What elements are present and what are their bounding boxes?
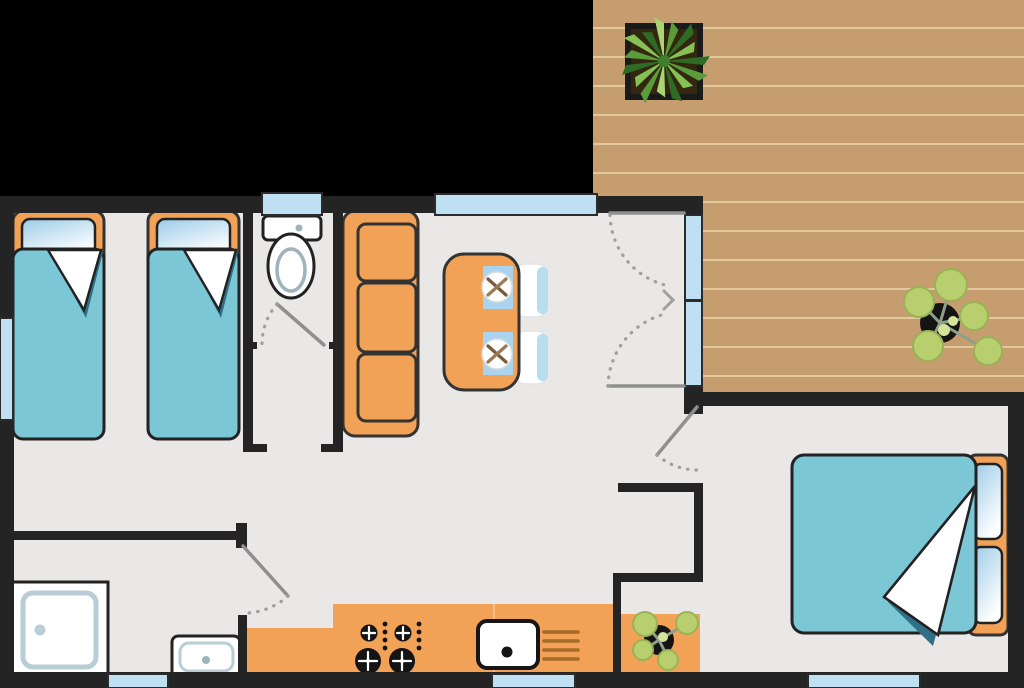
wall-wc-cap-left — [243, 444, 267, 452]
wall-wc-cap-right — [321, 444, 343, 452]
wall-wc-left-lower — [243, 349, 253, 448]
window-living — [435, 194, 597, 215]
wall-wc-left-upper — [243, 206, 253, 343]
place-setting-icon — [482, 272, 512, 302]
window-wc — [262, 193, 322, 215]
wall-bedroom-top — [702, 392, 1024, 406]
floor-plan-drawing — [0, 0, 1024, 688]
wall-shower-room — [6, 531, 243, 540]
wall-bedroom-zig-2 — [694, 483, 703, 582]
chair-1 — [516, 264, 548, 317]
wall-right — [1008, 392, 1024, 688]
sofa — [343, 211, 418, 436]
place-setting-icon — [482, 339, 512, 369]
kitchen-sink — [478, 621, 538, 668]
single-bed-1 — [13, 211, 104, 439]
toilet-bowl — [277, 249, 305, 291]
wall-bedroom-zig-1 — [618, 483, 703, 492]
deck-planter-plant — [620, 17, 710, 104]
window-twin-bedroom — [0, 318, 13, 420]
flush-button — [296, 225, 303, 232]
wall-shower-room-cap — [236, 523, 247, 548]
window-kitchen — [492, 674, 575, 688]
window-double-bedroom — [808, 674, 920, 688]
dining-table — [444, 254, 519, 390]
washbasin — [172, 636, 240, 678]
floor-plan-canvas — [0, 0, 1024, 688]
sofa-cushion — [358, 354, 416, 421]
wall-wc-jamb-right — [329, 342, 343, 349]
wall-wc-jamb-left — [243, 342, 257, 349]
sofa-cushion — [358, 283, 416, 352]
drain — [502, 647, 513, 658]
wall-bedroom-zig-4 — [613, 573, 621, 683]
french-door-panel-2 — [685, 301, 702, 386]
wall-bedroom-zig-3 — [613, 573, 703, 582]
wall-frenchdoor-top — [684, 196, 703, 215]
double-bed — [792, 455, 1008, 646]
kitchen-counter-low — [247, 628, 333, 676]
sofa-cushion — [358, 224, 416, 281]
shower — [12, 582, 108, 676]
wall-shower-room-stub — [238, 615, 247, 675]
window-shower-room — [108, 674, 168, 688]
wall-left — [0, 196, 14, 680]
wall-wc-right-lower — [333, 349, 343, 448]
drain — [35, 625, 46, 636]
wall-wc-right-upper — [333, 206, 343, 343]
wall-top — [6, 196, 703, 213]
chair-2 — [516, 331, 548, 384]
single-bed-2 — [148, 211, 239, 439]
drain — [202, 656, 210, 664]
french-door-panel-1 — [685, 215, 702, 300]
